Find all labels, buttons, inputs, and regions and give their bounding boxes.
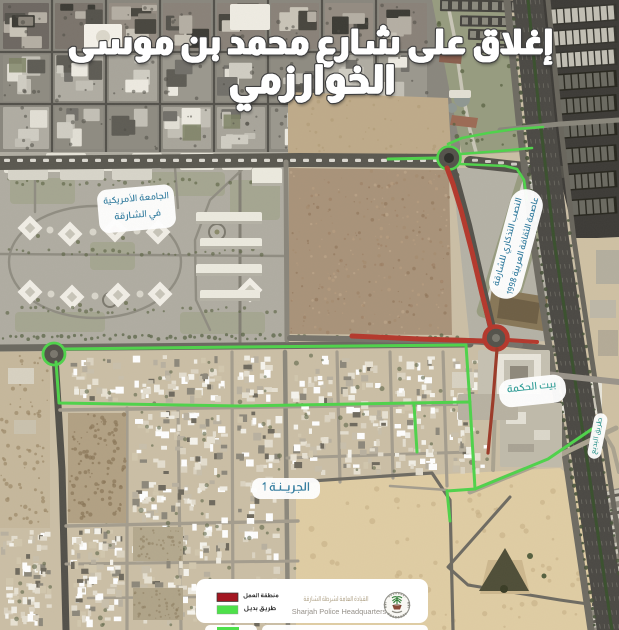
svg-text:Sharjah Police Headquarters: Sharjah Police Headquarters bbox=[292, 607, 387, 616]
